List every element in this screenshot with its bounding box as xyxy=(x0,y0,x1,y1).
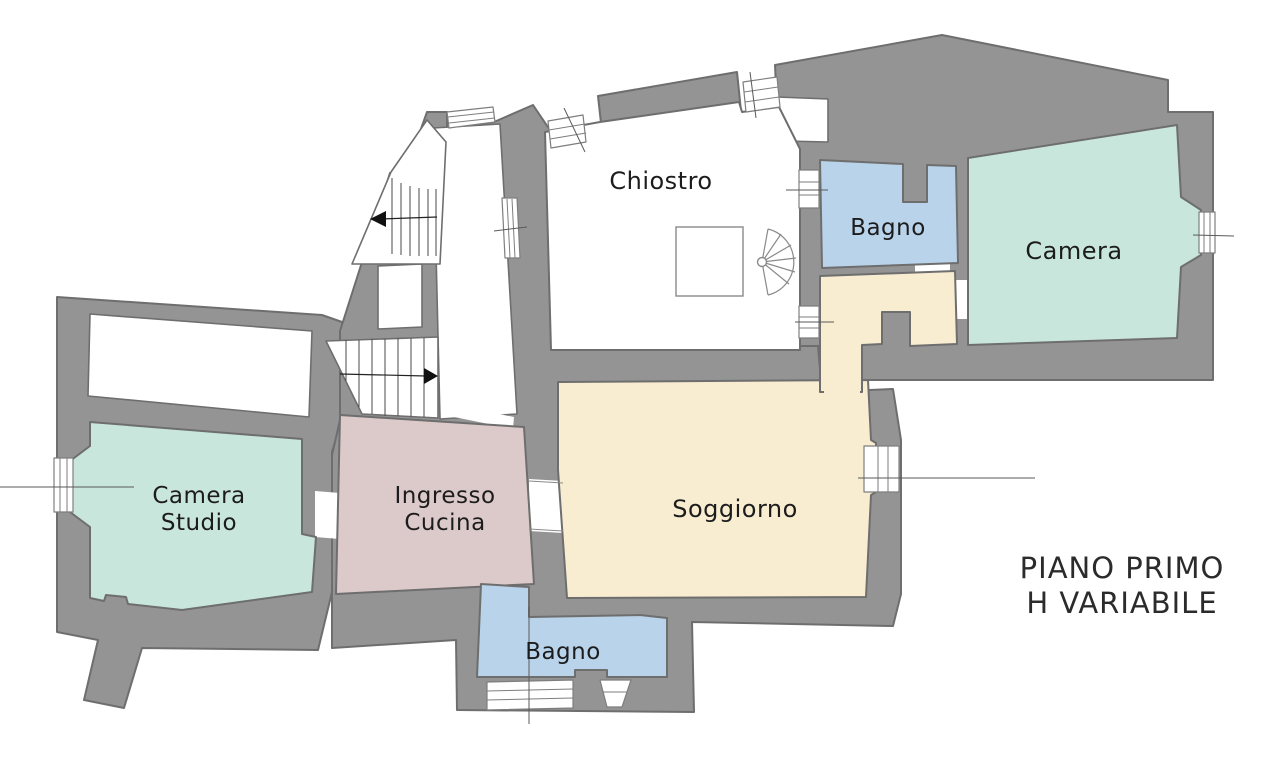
label-soggiorno: Soggiorno xyxy=(672,495,798,523)
label-ingresso-line1: Ingresso xyxy=(394,483,495,509)
plan-title-line2: H VARIABILE xyxy=(1026,586,1217,620)
label-camera: Camera xyxy=(1025,237,1122,265)
floor-plan-drawing: Chiostro Bagno Camera Camera Studio Ingr… xyxy=(0,0,1280,763)
hallway-soggiorno-junction-patch xyxy=(824,380,860,393)
window-soggiorno-right xyxy=(858,446,1035,492)
label-camera-studio-line2: Studio xyxy=(161,510,237,536)
room-bagno-top xyxy=(820,160,958,268)
label-bagno-bottom: Bagno xyxy=(525,639,601,665)
door-camerastudio-ingresso xyxy=(315,491,340,539)
label-chiostro: Chiostro xyxy=(609,167,712,195)
label-ingresso-line2: Cucina xyxy=(404,510,485,536)
chiostro-well-square xyxy=(676,227,743,296)
label-camera-studio-line1: Camera xyxy=(152,483,245,509)
plan-title-line1: PIANO PRIMO xyxy=(1020,551,1225,585)
room-camera xyxy=(968,125,1201,345)
stairs-upper xyxy=(352,120,446,264)
window-camera-right xyxy=(1193,212,1234,253)
floor-plan-page: Chiostro Bagno Camera Camera Studio Ingr… xyxy=(0,0,1280,763)
label-bagno-top: Bagno xyxy=(850,215,926,241)
stair-landing xyxy=(378,264,422,329)
door-ingresso-soggiorno xyxy=(529,479,563,533)
room-soggiorno xyxy=(558,380,876,598)
